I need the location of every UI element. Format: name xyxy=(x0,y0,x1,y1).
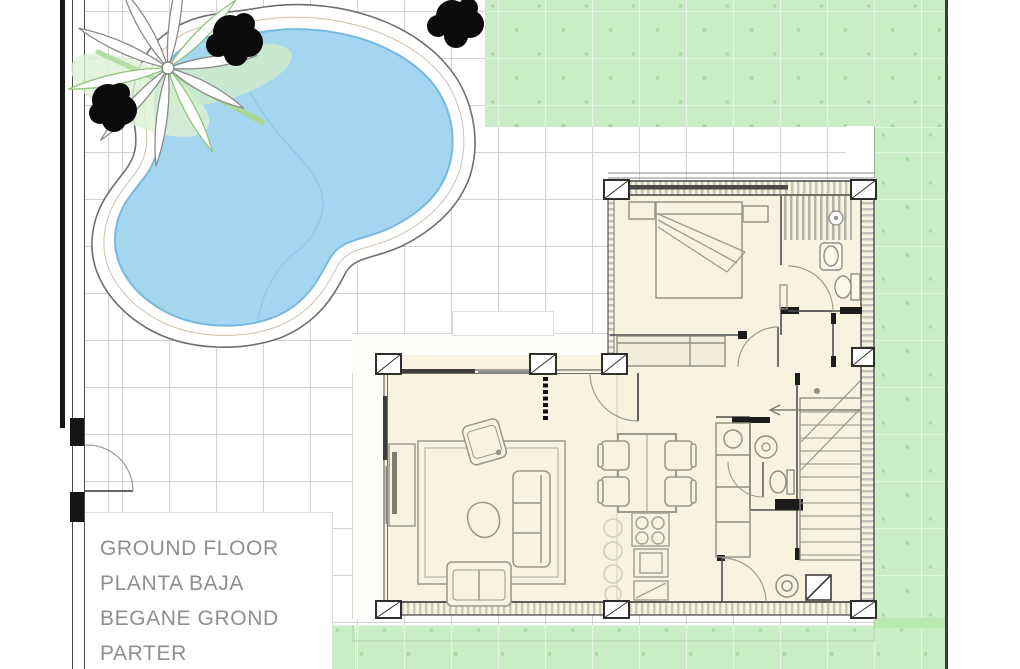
title-block: GROUND FLOOR PLANTA BAJA BEGANE GROND PA… xyxy=(85,512,333,669)
plan-title-nl: BEGANE GROND xyxy=(100,607,330,631)
bedroom-window xyxy=(628,185,788,190)
bench-ottoman xyxy=(447,562,511,606)
plan-title-pl: PARTER xyxy=(100,642,330,666)
parapet-lines xyxy=(608,173,874,178)
plan-title-es: PLANTA BAJA xyxy=(100,572,330,596)
plot-faint-lines xyxy=(353,618,874,641)
bush-icon xyxy=(427,0,484,48)
boiler-unit xyxy=(806,575,831,600)
bathroom-toilet xyxy=(835,274,860,300)
sofa xyxy=(513,471,550,567)
wardrobe xyxy=(617,336,725,366)
plan-title-en: GROUND FLOOR xyxy=(100,537,330,561)
tv-screen xyxy=(392,452,397,514)
site-plan: GROUND FLOOR PLANTA BAJA BEGANE GROND PA… xyxy=(0,0,1020,669)
gate-door xyxy=(85,445,133,491)
wc-toilet xyxy=(770,470,794,494)
bathroom-sink xyxy=(820,243,842,270)
